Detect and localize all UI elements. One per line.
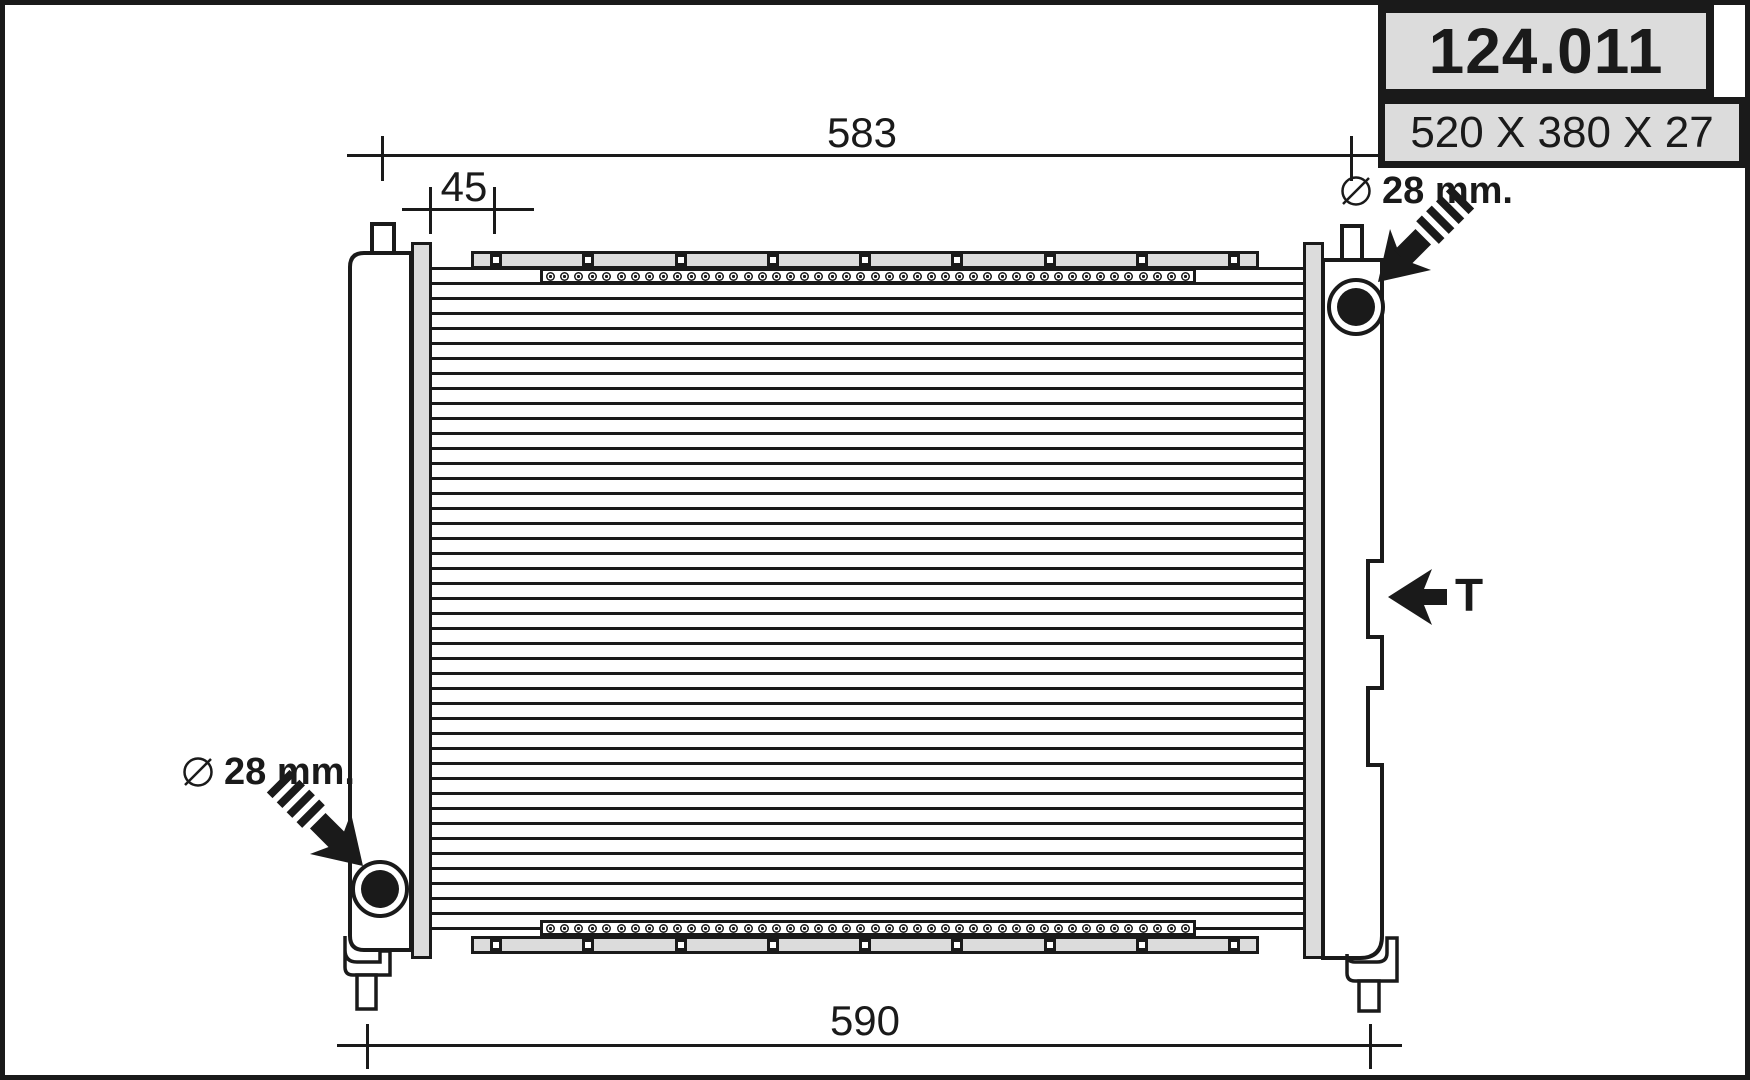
dim-label-offset: 45 xyxy=(404,166,524,208)
inlet-diameter-text: 28 mm. xyxy=(1382,172,1513,210)
thermo-arrow-icon xyxy=(1388,569,1447,625)
tank-left xyxy=(350,253,411,950)
outlet-diameter-label: 28 mm. xyxy=(179,753,355,791)
inlet-port xyxy=(1329,280,1383,334)
dim-tick xyxy=(366,1024,369,1069)
outlet-port xyxy=(353,862,407,916)
drain-stub-right xyxy=(1359,981,1379,1011)
inlet-diameter-label: 28 mm. xyxy=(1337,172,1513,210)
radiator-outline-drawing xyxy=(0,0,1750,1080)
tank-right xyxy=(1323,260,1382,958)
thermo-switch-label: T xyxy=(1455,572,1483,618)
dim-tick xyxy=(381,136,384,181)
catalog-page: 124.011 520 X 380 X 27 xyxy=(0,0,1750,1080)
dim-label-top-width: 583 xyxy=(802,112,922,154)
dim-tick xyxy=(1369,1024,1372,1069)
diameter-icon xyxy=(1337,172,1375,210)
outlet-diameter-text: 28 mm. xyxy=(224,753,355,791)
drain-stub-left xyxy=(357,975,376,1009)
dim-label-bottom-width: 590 xyxy=(805,1000,925,1042)
diameter-icon xyxy=(179,753,217,791)
dim-line-bottom xyxy=(337,1044,1402,1047)
